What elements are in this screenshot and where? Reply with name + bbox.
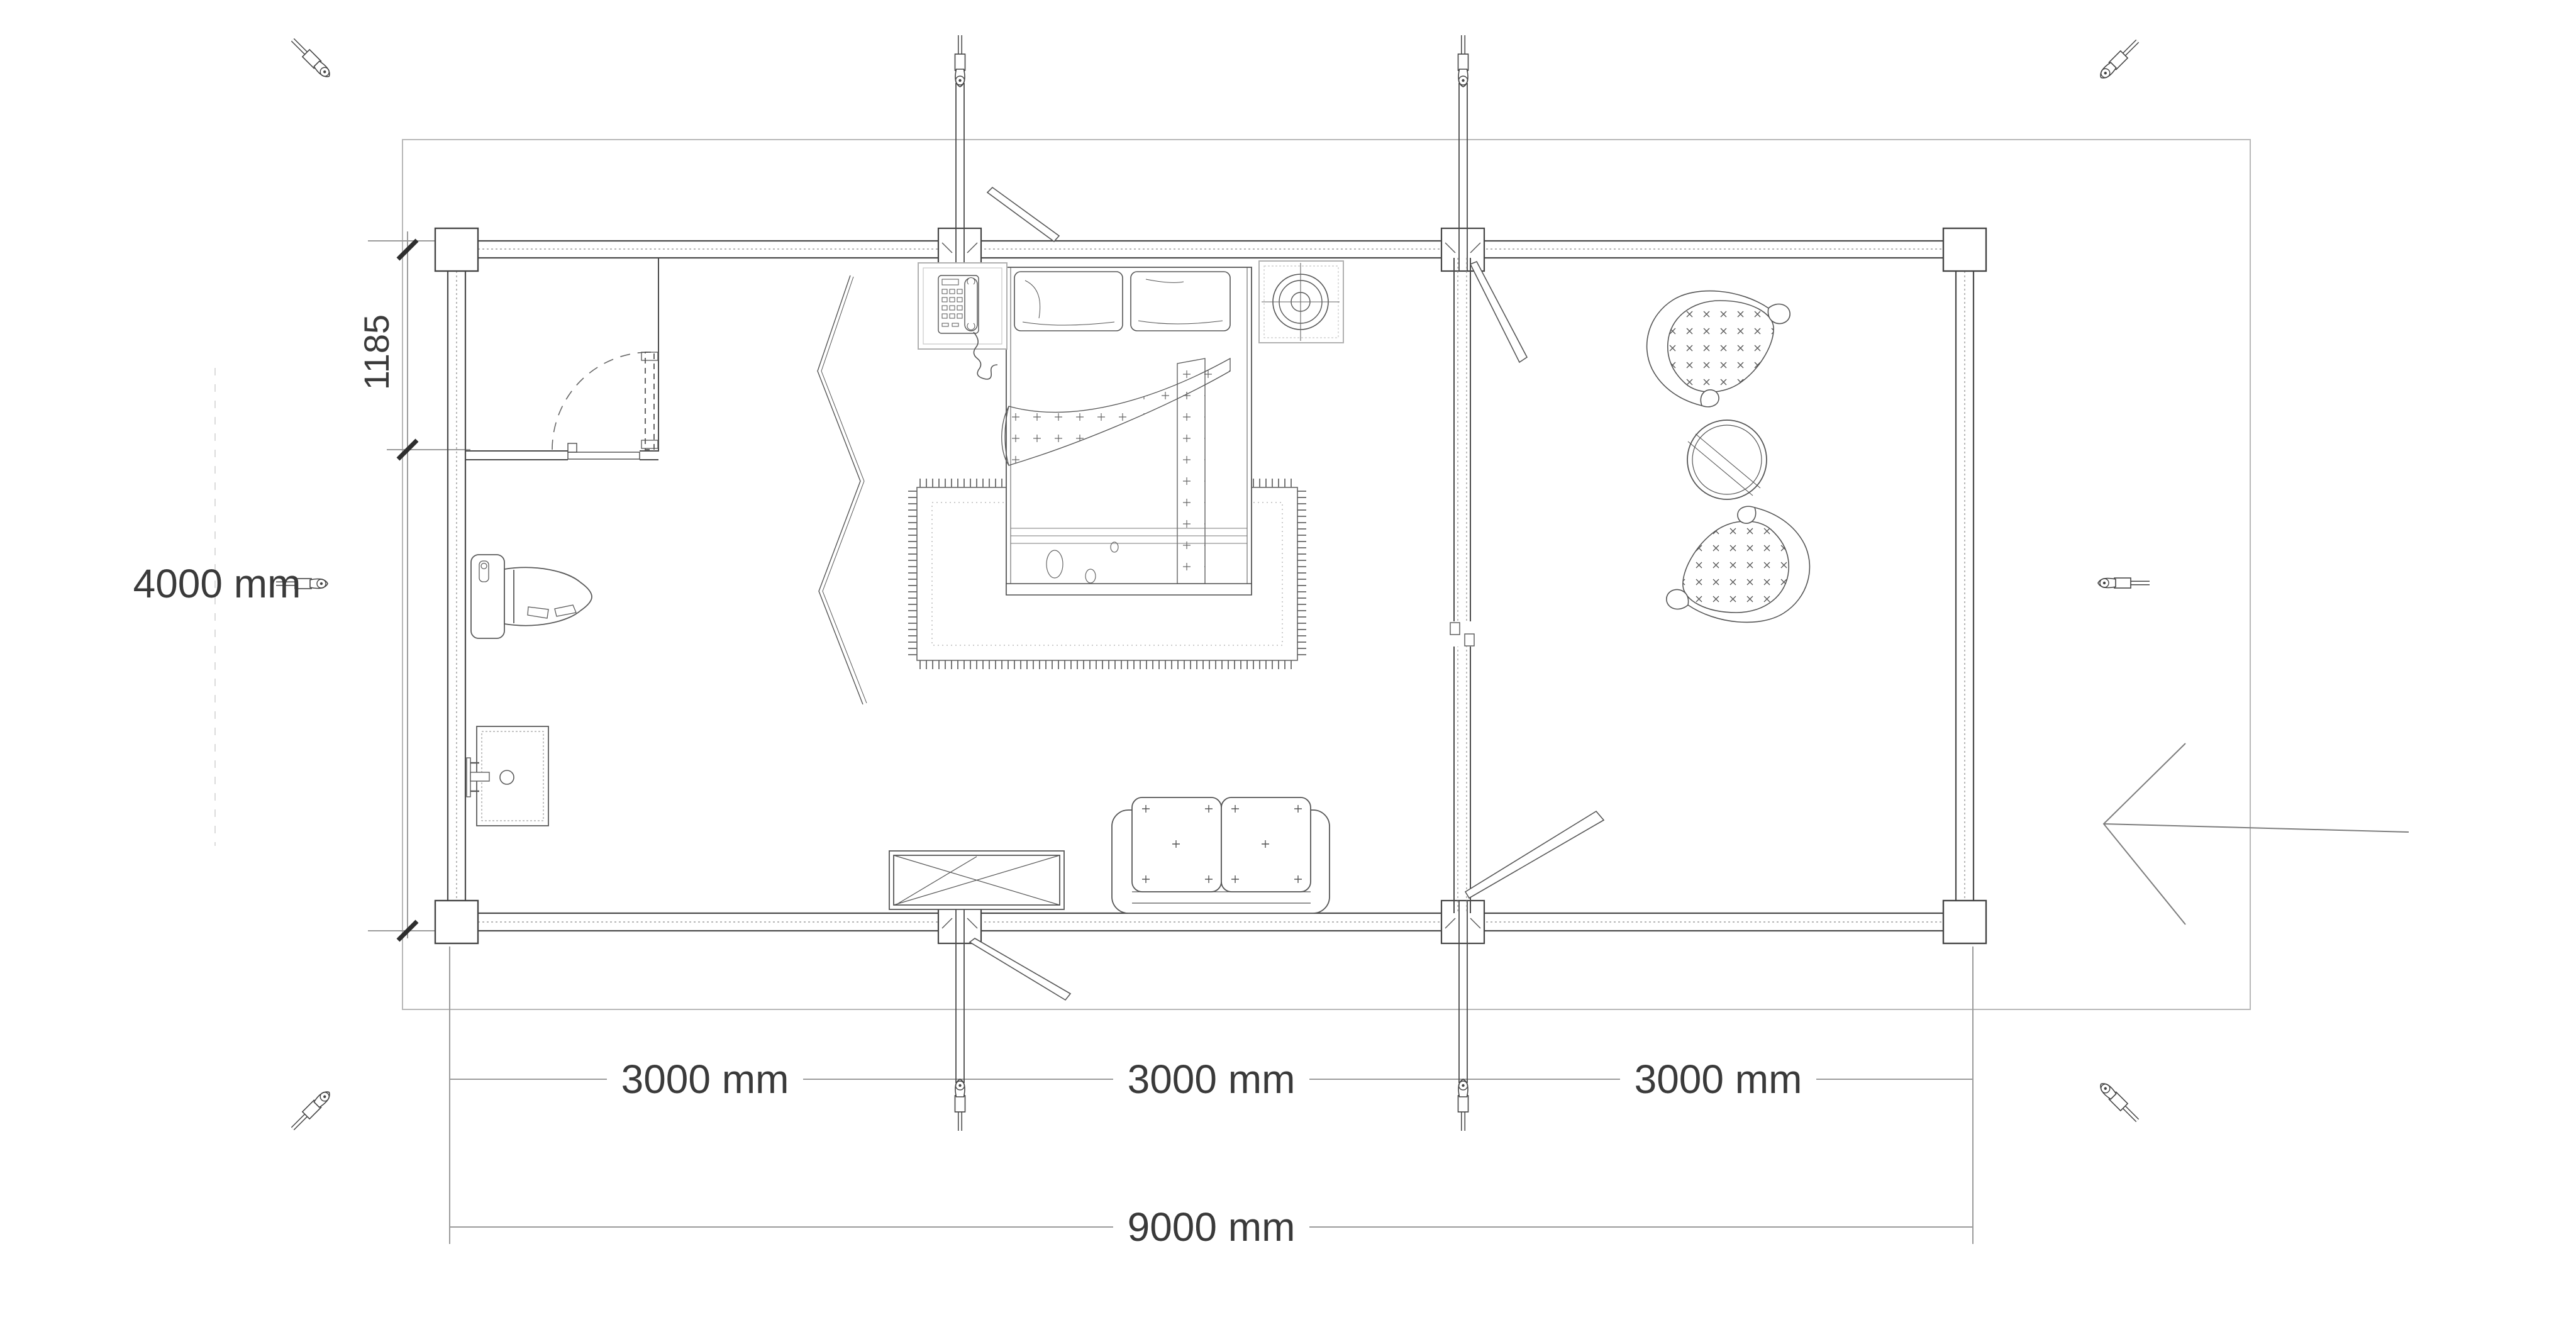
dim-height-label: 4000 mm: [133, 561, 301, 606]
lounge-chair-top: [1647, 291, 1790, 407]
sofa: [1112, 797, 1330, 913]
anchor-fitting-icon: [289, 1089, 333, 1132]
coffee-table: [889, 851, 1064, 909]
sash-top-left: [987, 187, 1059, 242]
bathroom-partition: [465, 258, 658, 460]
anchor-fitting-icon: [2097, 38, 2141, 81]
nightstand-right: [1259, 261, 1343, 343]
anchor-fitting-icon: [2098, 578, 2150, 588]
partition-wall: [1450, 258, 1474, 913]
pillow: [1014, 272, 1230, 331]
dim-bay3-label: 3000 mm: [1635, 1057, 1802, 1102]
anchor-fitting-icon: [1458, 1079, 1468, 1131]
toilet: [471, 555, 592, 638]
anchor-fitting-icon: [955, 1079, 965, 1131]
anchor-fitting-icon: [955, 35, 965, 87]
anchor-fitting-icon: [1458, 35, 1468, 87]
sash-bottom-left: [970, 938, 1070, 1000]
entry-arrow-icon: [2104, 743, 2409, 924]
dim-bay2-label: 3000 mm: [1128, 1057, 1296, 1102]
nightstand-left: [918, 263, 1007, 379]
bed: [1002, 267, 1252, 595]
lounge-chair-bottom: [1667, 506, 1810, 622]
anchor-fitting-icon: [2097, 1080, 2141, 1124]
folding-screen: [818, 275, 863, 704]
floor-plan-canvas: 4000 mm 1185 3000 mm 3000 mm 3000 mm 900…: [0, 0, 2576, 1327]
floor-plan-drawing: 4000 mm 1185 3000 mm 3000 mm 3000 mm 900…: [0, 0, 2576, 1327]
sash-right-bottom: [1465, 811, 1604, 898]
round-table: [1687, 420, 1767, 499]
footboard: [1006, 584, 1252, 595]
sash-right-top: [1470, 262, 1527, 362]
blanket-runner: [1177, 358, 1205, 584]
anchor-fitting-icon: [289, 36, 333, 80]
dim-offset-label: 1185: [357, 314, 396, 390]
bathroom-door: [552, 352, 658, 450]
sink: [467, 726, 548, 826]
dim-width-label: 9000 mm: [1128, 1204, 1296, 1250]
dimension-labels: 4000 mm 1185 3000 mm 3000 mm 3000 mm 900…: [133, 314, 1816, 1251]
dim-bay1-label: 3000 mm: [621, 1057, 789, 1102]
